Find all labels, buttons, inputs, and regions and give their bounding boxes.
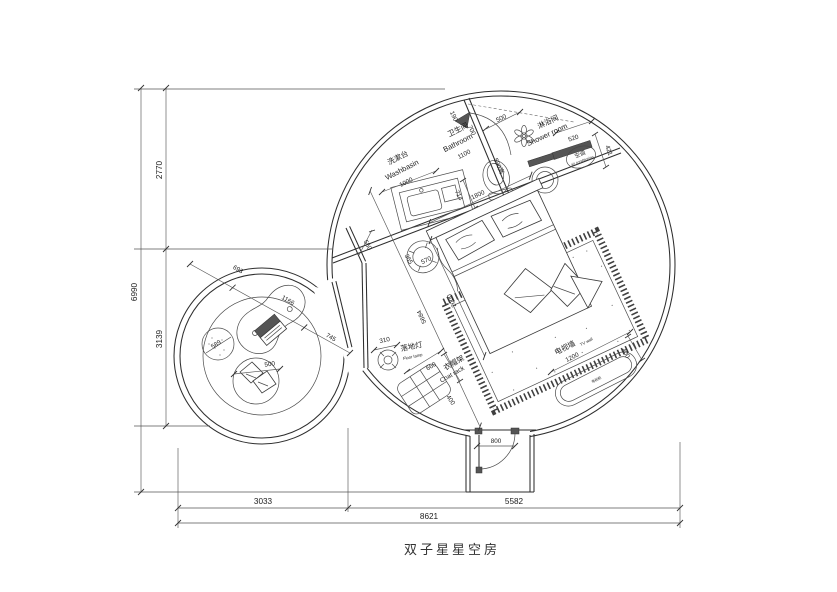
- door-hinge-block: [475, 428, 482, 434]
- dim-total-width: 8621: [420, 512, 439, 521]
- dim-bathroom-width: 1100: [457, 148, 473, 161]
- dim-diagonal: 5684: [416, 309, 428, 325]
- lamp-spokes-icon: [380, 352, 396, 368]
- floor-lamp: 310 落地灯 Floor lamp: [371, 336, 424, 370]
- pouf: 589: [202, 328, 234, 360]
- dim-toilet-clearance: 714: [453, 189, 464, 202]
- faucet-icon: [419, 188, 423, 192]
- dim-width-right: 5582: [505, 497, 524, 506]
- label-tv-wall-en: TV wall: [579, 336, 594, 347]
- dim-line-lamp: [374, 345, 397, 350]
- door-leaf-end: [476, 467, 482, 473]
- dim-lamp-diameter: 310: [379, 336, 391, 345]
- left-dimension-block: 6990 2770 3139: [130, 85, 466, 495]
- dim-total-height: 6990: [130, 282, 139, 301]
- dim-ac-width: 520: [567, 133, 580, 143]
- dim-tv-width: 1200: [564, 351, 580, 364]
- shower-threshold-bar: [528, 153, 555, 167]
- dim-tv-depth: 400: [620, 347, 631, 360]
- sink: [407, 189, 443, 216]
- dim-stool-b: 570: [420, 255, 433, 266]
- dim-shower-opening: 500: [495, 113, 508, 124]
- dim-ticks: [138, 85, 169, 495]
- label-lamp-en: Floor lamp: [402, 352, 423, 361]
- lounge-chair: 500: [231, 358, 283, 404]
- dim-rack-depth: 400: [444, 394, 456, 407]
- dim-lounge-a: 693: [231, 264, 244, 276]
- dim-lounge-b: 1166: [280, 294, 296, 307]
- floor-plan-drawing: 800: [0, 0, 837, 592]
- dim-pouf: 589: [210, 339, 223, 351]
- label-tv-cabinet: 电视柜: [590, 375, 602, 384]
- dim-door-width: 800: [491, 438, 502, 445]
- dim-width-left: 3033: [254, 497, 273, 506]
- dim-ac-offset: 421: [603, 144, 613, 157]
- dim-upper-height: 2770: [155, 160, 164, 179]
- label-lamp-zh: 落地灯: [400, 340, 424, 354]
- tv-area: 电视柜 电视墙 TV wall 1200 400: [548, 329, 645, 411]
- dim-rack-width: 660: [425, 361, 438, 373]
- dim-washbasin-width: 1000: [398, 176, 414, 189]
- dim-lower-height: 3139: [155, 329, 164, 348]
- kidney-table: [228, 278, 317, 363]
- floor-plan-canvas: 800: [0, 0, 837, 592]
- drawing-title: 双子星星空房: [404, 542, 500, 557]
- lounge-floor-edge: [203, 297, 321, 415]
